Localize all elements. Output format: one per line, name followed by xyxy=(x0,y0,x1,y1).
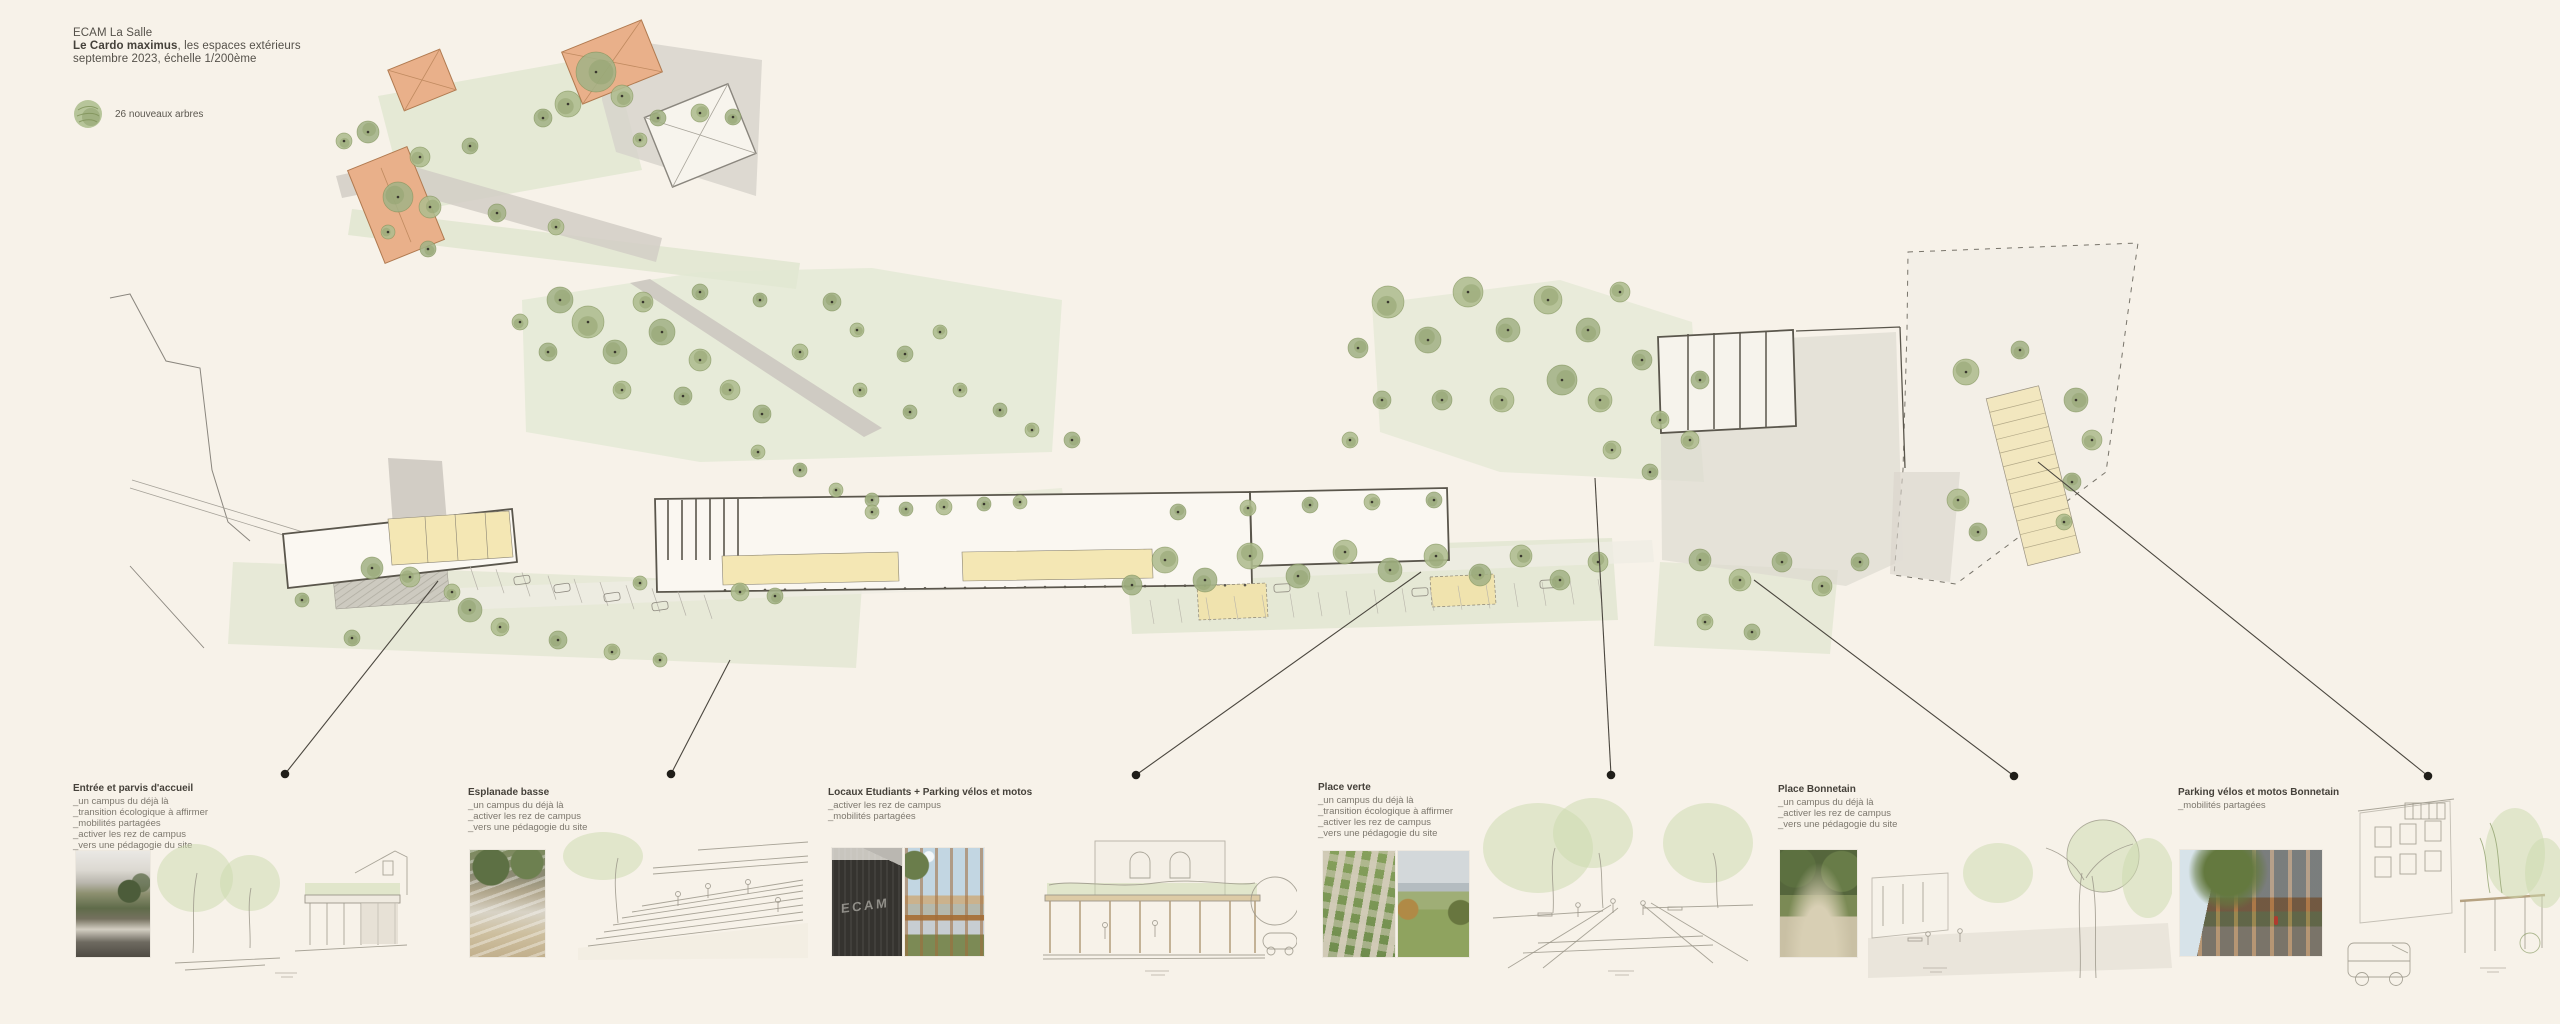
annotation-title: Locaux Etudiants + Parking vélos et moto… xyxy=(828,787,1098,798)
presentation-board: ECAM La Salle Le Cardo maximus, les espa… xyxy=(0,0,2560,1024)
legend-label: 26 nouveaux arbres xyxy=(115,109,203,120)
photo-bonnetain-colonnade xyxy=(2180,850,2322,956)
sketch-place-bonnetain xyxy=(1868,818,2172,993)
photo-timber-pavilion xyxy=(905,848,984,956)
person-figure xyxy=(2274,916,2278,925)
project-title: Le Cardo maximus, les espaces extérieurs xyxy=(73,40,301,53)
tree-canopy-icon xyxy=(70,96,106,132)
sketch-entrance-parvis xyxy=(155,833,413,978)
annotation-title: Esplanade basse xyxy=(468,787,738,798)
annotation-esplanade: Esplanade basse _un campus du déjà là _a… xyxy=(468,787,738,833)
project-date-scale: septembre 2023, échelle 1/200ème xyxy=(73,53,301,66)
photo-campus-view xyxy=(76,851,150,957)
photo-meadow-view xyxy=(1398,851,1469,957)
sketch-place-verte xyxy=(1483,793,1761,978)
sketch-student-pavilion xyxy=(1035,833,1297,988)
project-client: ECAM La Salle xyxy=(73,27,301,40)
photo-esplanade-stairs xyxy=(470,850,545,957)
annotation-title: Place Bonnetain xyxy=(1778,784,2048,795)
photo-tree-path xyxy=(1780,850,1857,957)
ecam-sign: ECAM xyxy=(841,895,889,916)
photo-ecam-facade: ECAM xyxy=(832,848,902,956)
sketch-parking-bonnetain xyxy=(2330,793,2560,1003)
annotation-title: Entrée et parvis d'accueil xyxy=(73,783,343,794)
photo-grass-pavers xyxy=(1323,851,1395,957)
annotation-locaux-etudiants: Locaux Etudiants + Parking vélos et moto… xyxy=(828,787,1098,822)
sketch-esplanade-steps xyxy=(558,828,813,963)
annotation-title: Place verte xyxy=(1318,782,1588,793)
title-block: ECAM La Salle Le Cardo maximus, les espa… xyxy=(73,27,301,66)
legend: 26 nouveaux arbres xyxy=(70,96,203,132)
